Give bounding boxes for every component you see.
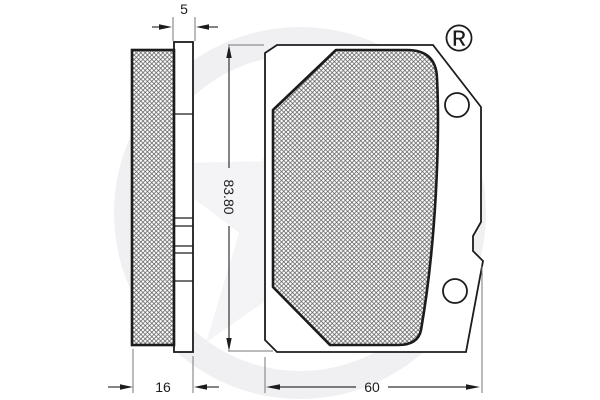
dimension-value-total-thickness: 16 <box>155 379 171 395</box>
registered-trademark-icon: ® <box>445 18 473 60</box>
side-view-backing-plate <box>174 42 193 352</box>
arrowhead-left-icon <box>194 384 207 389</box>
dimension-value-pad-height: 83.80 <box>221 179 237 214</box>
arrowhead-down-icon <box>226 338 231 351</box>
arrowhead-right-icon <box>120 384 133 389</box>
mounting-hole-bottom <box>443 279 467 303</box>
front-view <box>265 45 483 352</box>
side-view-friction-material <box>132 50 174 345</box>
arrowhead-right-icon <box>159 24 172 29</box>
arrowhead-right-icon <box>466 384 480 389</box>
brake-pad-drawing: ® 5 83.80 <box>0 0 600 400</box>
mounting-hole-top <box>445 93 469 117</box>
dimension-value-pad-width: 60 <box>364 379 380 395</box>
dimension-plate-thickness: 5 <box>152 1 218 41</box>
arrowhead-left-icon <box>196 24 209 29</box>
technical-drawing-canvas: ® 5 83.80 <box>0 0 600 400</box>
dimension-value-plate-thickness: 5 <box>180 1 188 17</box>
side-view <box>132 42 193 352</box>
front-view-friction-material <box>273 50 438 345</box>
